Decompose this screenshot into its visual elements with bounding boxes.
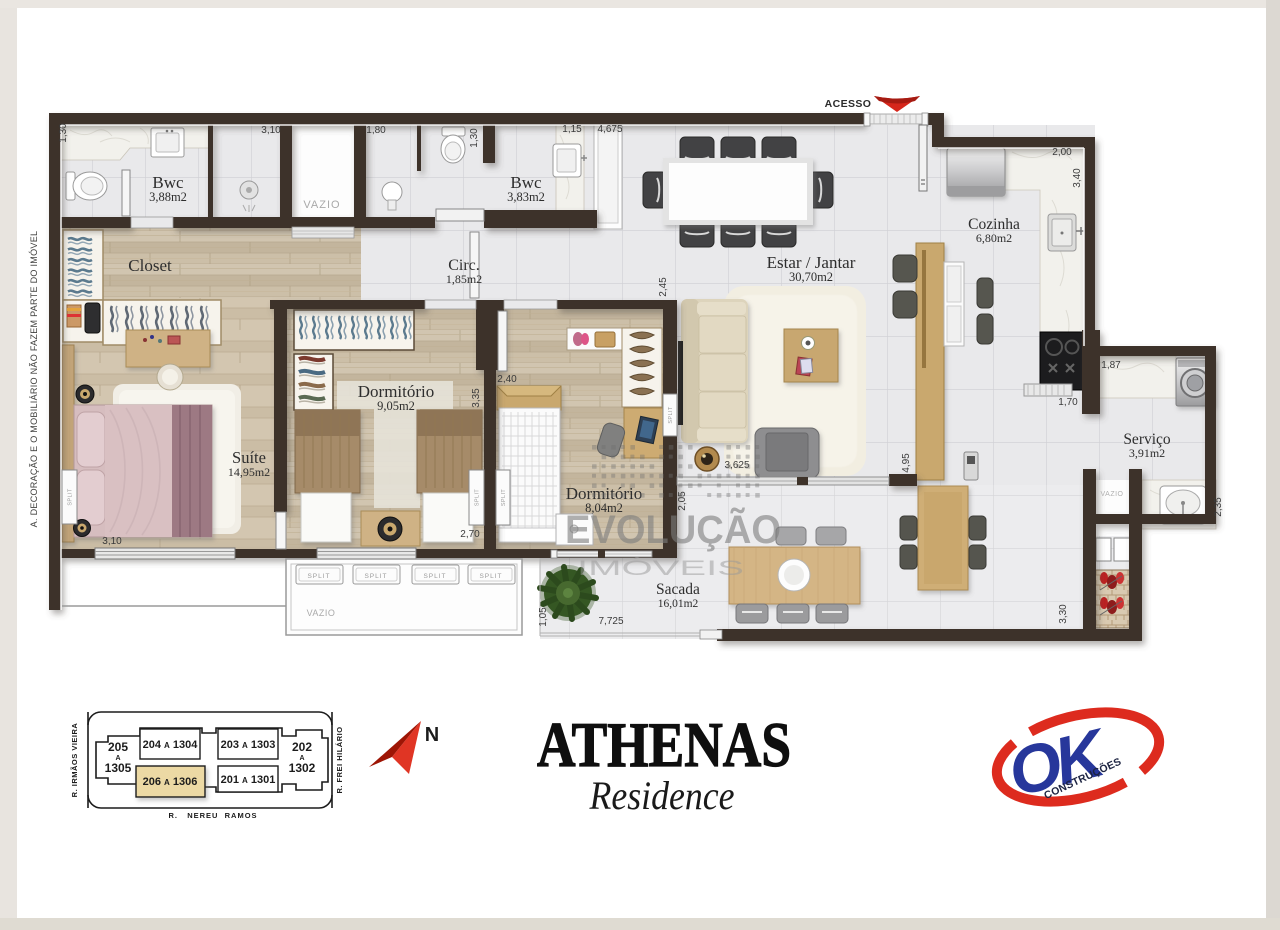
svg-text:1,85m2: 1,85m2 bbox=[446, 272, 482, 286]
svg-text:1,30: 1,30 bbox=[469, 128, 480, 148]
svg-text:R. NEREU RAMOS: R. NEREU RAMOS bbox=[168, 811, 257, 820]
svg-text:1305: 1305 bbox=[105, 761, 132, 775]
svg-text:202: 202 bbox=[292, 740, 312, 754]
svg-text:SPLIT: SPLIT bbox=[479, 573, 502, 580]
svg-text:SPLIT: SPLIT bbox=[475, 489, 481, 507]
svg-text:SPLIT: SPLIT bbox=[68, 488, 74, 506]
svg-text:Sacada: Sacada bbox=[656, 581, 700, 598]
svg-text:VAZIO: VAZIO bbox=[1101, 491, 1124, 498]
svg-text:A. DECORAÇÃO E O MOBILIÁRIO NÃ: A. DECORAÇÃO E O MOBILIÁRIO NÃO FAZEM PA… bbox=[29, 231, 39, 528]
svg-text:4,95: 4,95 bbox=[901, 453, 912, 473]
svg-text:3,40: 3,40 bbox=[1072, 168, 1083, 188]
svg-text:Residence: Residence bbox=[589, 773, 735, 818]
svg-text:3,35: 3,35 bbox=[471, 388, 482, 408]
svg-text:2,45: 2,45 bbox=[658, 277, 669, 297]
svg-text:2,00: 2,00 bbox=[1052, 147, 1072, 158]
svg-text:1,05: 1,05 bbox=[538, 607, 549, 627]
svg-text:2,35: 2,35 bbox=[1213, 497, 1224, 517]
svg-text:N: N bbox=[425, 724, 439, 746]
svg-text:3,10: 3,10 bbox=[102, 536, 122, 547]
svg-text:2,70: 2,70 bbox=[460, 529, 480, 540]
svg-text:14,95m2: 14,95m2 bbox=[228, 465, 270, 479]
svg-text:3,10: 3,10 bbox=[261, 125, 281, 136]
svg-text:VAZIO: VAZIO bbox=[307, 608, 336, 618]
svg-text:Closet: Closet bbox=[128, 256, 172, 275]
svg-text:EVOLUÇÃO: EVOLUÇÃO bbox=[565, 506, 781, 552]
svg-text:IMÓVEIS: IMÓVEIS bbox=[577, 557, 744, 580]
svg-text:30,70m2: 30,70m2 bbox=[789, 270, 833, 284]
svg-text:R. IRMÃOS VIEIRA: R. IRMÃOS VIEIRA bbox=[70, 723, 79, 798]
svg-text:3,91m2: 3,91m2 bbox=[1129, 446, 1165, 460]
svg-text:1302: 1302 bbox=[289, 761, 316, 775]
svg-text:3,83m2: 3,83m2 bbox=[507, 190, 545, 204]
svg-text:1,80: 1,80 bbox=[366, 125, 386, 136]
svg-text:SPLIT: SPLIT bbox=[668, 406, 674, 424]
svg-text:VAZIO: VAZIO bbox=[303, 199, 340, 211]
svg-text:2,40: 2,40 bbox=[497, 374, 517, 385]
svg-text:3,30: 3,30 bbox=[1058, 604, 1069, 624]
svg-text:1,15: 1,15 bbox=[562, 124, 582, 135]
svg-text:6,80m2: 6,80m2 bbox=[976, 231, 1012, 245]
svg-text:204 A 1304: 204 A 1304 bbox=[143, 739, 199, 751]
svg-text:3,88m2: 3,88m2 bbox=[149, 190, 187, 204]
svg-text:7,725: 7,725 bbox=[598, 616, 623, 627]
svg-text:205: 205 bbox=[108, 740, 128, 754]
svg-text:201 A 1301: 201 A 1301 bbox=[221, 774, 276, 786]
svg-text:206 A 1306: 206 A 1306 bbox=[143, 776, 198, 788]
svg-text:SPLIT: SPLIT bbox=[501, 489, 507, 507]
svg-text:ACESSO: ACESSO bbox=[825, 98, 872, 110]
svg-text:SPLIT: SPLIT bbox=[307, 573, 330, 580]
svg-text:ATHENAS: ATHENAS bbox=[537, 710, 791, 780]
svg-text:16,01m2: 16,01m2 bbox=[658, 598, 699, 610]
svg-text:1,30: 1,30 bbox=[58, 123, 69, 143]
svg-text:9,05m2: 9,05m2 bbox=[377, 399, 415, 413]
svg-text:SPLIT: SPLIT bbox=[364, 573, 387, 580]
svg-text:R. FREI HILÁRIO: R. FREI HILÁRIO bbox=[335, 726, 344, 793]
svg-text:1,70: 1,70 bbox=[1058, 397, 1078, 408]
svg-text:SPLIT: SPLIT bbox=[423, 573, 446, 580]
svg-text:1,87: 1,87 bbox=[1101, 360, 1121, 371]
svg-text:203 A 1303: 203 A 1303 bbox=[221, 739, 276, 751]
svg-text:4,675: 4,675 bbox=[597, 124, 622, 135]
